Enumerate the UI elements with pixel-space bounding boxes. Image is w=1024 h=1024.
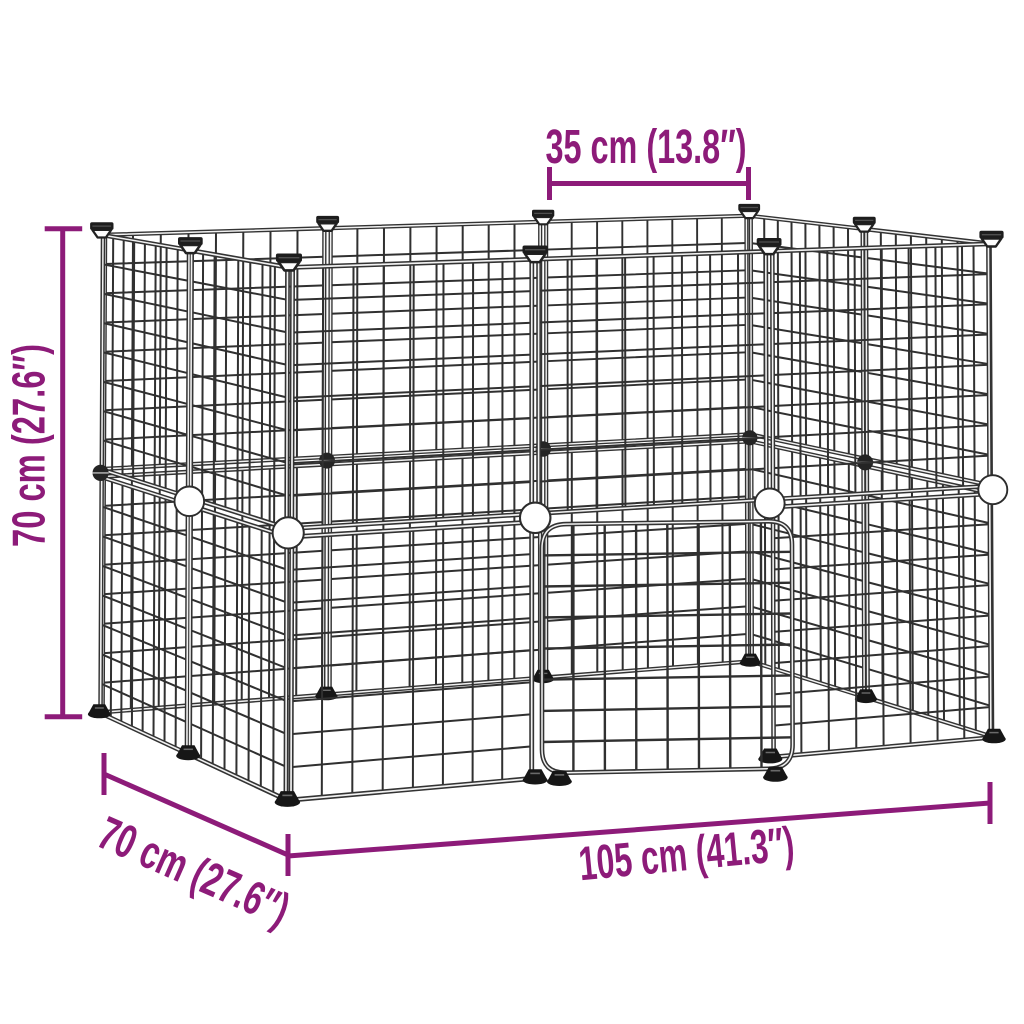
svg-text:35 cm (13.8″): 35 cm (13.8″) [546, 121, 747, 174]
svg-text:70 cm (27.6″): 70 cm (27.6″) [3, 344, 55, 547]
